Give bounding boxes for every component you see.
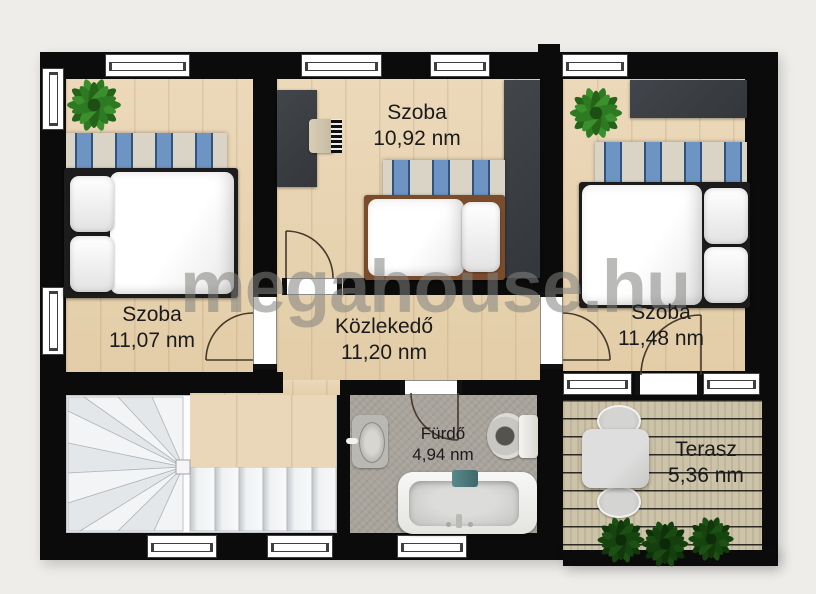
rug-right-room — [595, 142, 747, 183]
room-area: 11,20 nm — [284, 340, 484, 366]
pillow-left-room-2 — [70, 236, 114, 292]
pillow-left-room-1 — [70, 176, 114, 232]
potted-plant-left-room — [62, 73, 126, 137]
bathroom-door-frame — [402, 380, 460, 395]
room-name: Fürdő — [383, 423, 503, 444]
terrace-door-frame — [637, 373, 700, 395]
bathtub-knob — [446, 522, 451, 527]
bathtub-faucet — [456, 514, 462, 528]
room-area: 11,07 nm — [62, 328, 242, 354]
room-label-bedroom-left: Szoba 11,07 nm — [62, 302, 242, 354]
room-name: Szoba — [327, 100, 507, 126]
toilet-tank — [519, 415, 538, 458]
room-area: 11,48 nm — [571, 326, 751, 352]
window-terrace-left — [563, 373, 632, 395]
room-area: 4,94 nm — [383, 444, 503, 465]
room-label-hallway: Közlekedő 11,20 nm — [284, 314, 484, 366]
floorplan: megahouse.hu Szoba 11,07 nm Szoba 10,92 … — [0, 0, 816, 594]
pillow-right-room-1 — [704, 188, 748, 244]
room-name: Szoba — [571, 300, 751, 326]
room-label-bathroom: Fürdő 4,94 nm — [383, 423, 503, 465]
potted-plant-right-room — [565, 82, 627, 144]
window-top-middle-room-1 — [301, 54, 382, 77]
sink-faucet — [346, 438, 358, 444]
terrace-bush-3 — [682, 512, 740, 566]
bathtub-knob-2 — [468, 522, 473, 527]
window-bottom-bathroom — [397, 535, 467, 558]
window-terrace-right — [703, 373, 760, 395]
window-top-right-room — [562, 54, 628, 77]
rug-middle-room — [383, 160, 505, 197]
staircase — [66, 395, 337, 533]
room-name: Közlekedő — [284, 314, 484, 340]
towel — [452, 470, 478, 487]
room-area: 5,36 nm — [641, 463, 771, 489]
room-area: 10,92 nm — [327, 126, 507, 152]
wall-bathroom-terrace — [537, 380, 563, 533]
room-name: Terasz — [641, 437, 771, 463]
pillow-right-room-2 — [704, 247, 748, 303]
wall-bedroomleft-bottom — [40, 372, 283, 393]
wall-stairs-bathroom — [337, 395, 350, 533]
room-label-bedroom-right: Szoba 11,48 nm — [571, 300, 751, 352]
window-bottom-stairs-1 — [147, 535, 217, 558]
bathtub-basin — [409, 481, 519, 526]
window-bottom-stairs-2 — [267, 535, 333, 558]
room-label-bedroom-middle: Szoba 10,92 nm — [327, 100, 507, 152]
window-left-wall-upper — [42, 68, 64, 130]
window-top-middle-room-2 — [430, 54, 490, 77]
room-name: Szoba — [62, 302, 242, 328]
chimney-stub — [538, 44, 560, 52]
sink-basin — [359, 422, 385, 463]
window-left-wall-lower — [42, 287, 64, 355]
room-label-terrace: Terasz 5,36 nm — [641, 437, 771, 489]
terrace-table — [582, 429, 649, 488]
wardrobe-right-room — [630, 80, 747, 118]
